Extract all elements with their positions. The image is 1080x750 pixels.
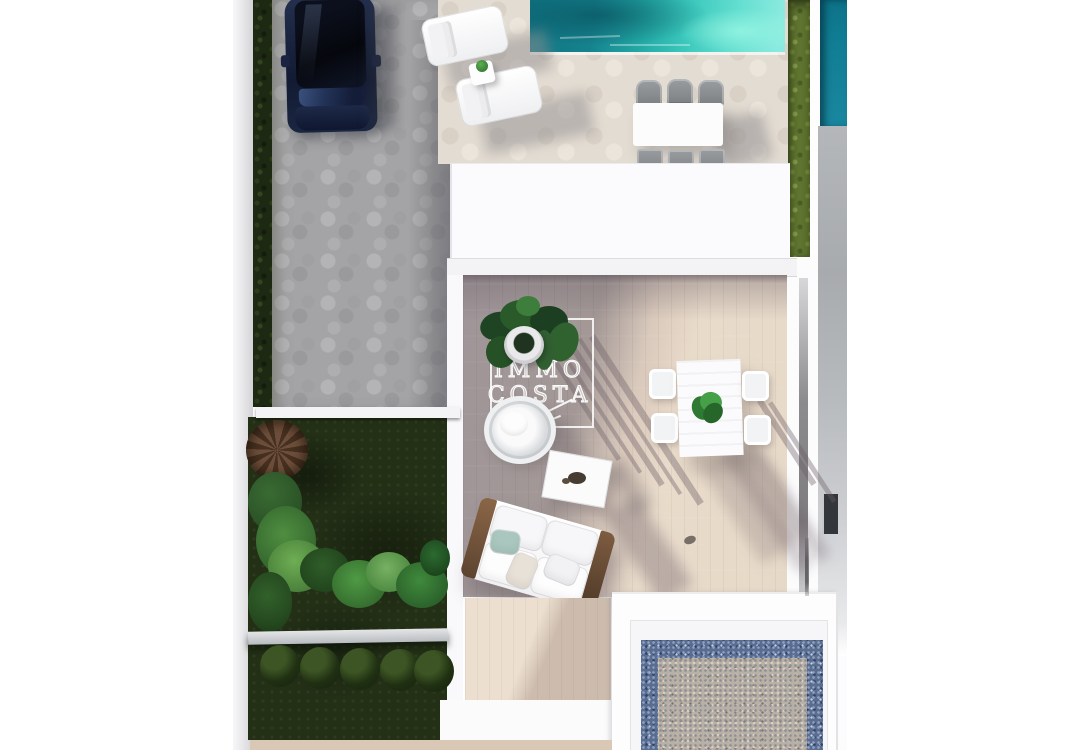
hedge-ball (414, 650, 454, 692)
brown-palm-plant (246, 420, 308, 480)
terrace-chair (744, 415, 771, 445)
poolside-chair (667, 79, 693, 105)
roof-edge-shadow (463, 275, 787, 283)
terrace-chair (649, 369, 676, 399)
villa-roof (450, 163, 790, 259)
car-hood (295, 105, 370, 131)
sofa-pillow-teal (489, 528, 522, 556)
water-sparkle (610, 44, 690, 46)
car-mirror-left (281, 55, 290, 67)
car-windshield (299, 87, 365, 107)
table-plant (476, 60, 488, 72)
potted-plant-leaf (516, 296, 540, 316)
neighbour-pool (820, 0, 847, 128)
water-sparkle (560, 35, 620, 39)
plant-pot (504, 326, 544, 364)
hanging-chair-cushion (500, 412, 528, 436)
terrace-chair (651, 413, 678, 443)
garden-plant (420, 540, 450, 576)
left-hedge-strip (253, 0, 272, 407)
villa-aerial-render: IMMO COSTA (0, 0, 1080, 750)
parked-car (284, 0, 378, 133)
lounger-cushion (427, 21, 458, 61)
neighbour-paving-shadow (818, 126, 847, 656)
table-decor (562, 478, 570, 484)
terrace-chair (742, 371, 769, 401)
lounger-cushion (461, 81, 492, 121)
hedge-ball (300, 647, 340, 689)
hedge-ball (340, 648, 380, 690)
poolside-dining-table (633, 103, 723, 146)
car-shadow (370, 6, 396, 128)
privacy-hedge (788, 0, 810, 257)
table-decor (568, 472, 586, 484)
hedge-ball (260, 645, 300, 687)
lower-terrace-wall (465, 598, 611, 702)
mosaic-center-gray (658, 658, 807, 750)
garden-plant (248, 572, 292, 632)
garden-top-wall (256, 407, 460, 418)
wall-edge-shadow (805, 538, 809, 596)
bottom-terrace-strip (250, 740, 612, 750)
swimming-pool (530, 0, 785, 52)
